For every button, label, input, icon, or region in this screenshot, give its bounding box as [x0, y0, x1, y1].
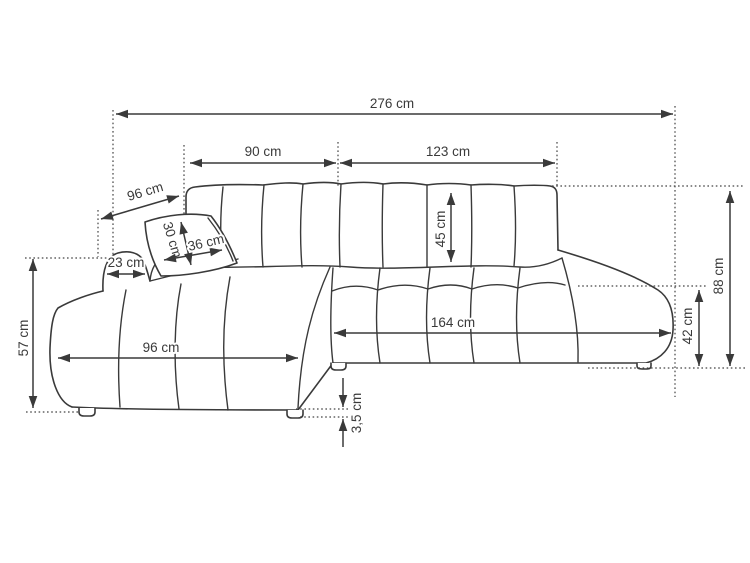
- sofa-dimension-diagram: 276 cm 90 cm 123 cm 96 cm 45 cm 30 cm 36…: [0, 0, 750, 563]
- seat-seam-3: [427, 268, 430, 363]
- seat-seam-2: [377, 268, 380, 363]
- diagram-canvas: 276 cm 90 cm 123 cm 96 cm 45 cm 30 cm 36…: [0, 0, 750, 563]
- dim-back-section-right-label: 123 cm: [426, 144, 470, 159]
- dim-total-height: 88 cm: [711, 191, 730, 366]
- dim-armrest-width-label: 23 cm: [108, 255, 145, 270]
- dim-seat-front-length: 164 cm: [334, 315, 671, 333]
- right-end-seam: [562, 258, 578, 362]
- dim-back-section-left: 90 cm: [190, 144, 336, 163]
- backrest-seam-8: [514, 186, 516, 266]
- dim-chaise-side-height-label: 57 cm: [16, 320, 31, 357]
- chaise-seam-3: [224, 277, 230, 410]
- dim-legs-height: 3,5 cm: [343, 378, 364, 447]
- seat-front-top-edge: [332, 283, 565, 291]
- backrest-seam-7: [471, 185, 472, 267]
- dim-backrest-height-label: 45 cm: [433, 211, 448, 248]
- chaise-bottom-edge: [72, 407, 298, 410]
- dim-seat-height: 42 cm: [680, 290, 699, 366]
- dim-chaise-front-length-label: 96 cm: [143, 340, 180, 355]
- chaise-seam-1: [119, 290, 126, 407]
- dim-armrest-width: 23 cm: [107, 255, 145, 274]
- dim-back-section-left-label: 90 cm: [245, 144, 282, 159]
- backrest-seam-2: [262, 185, 264, 267]
- backrest-bottom-edge: [186, 258, 562, 268]
- backrest-outline: [186, 183, 558, 251]
- backrest-seam-3: [301, 184, 303, 267]
- seat-seam-1: [331, 268, 333, 363]
- dim-backrest-height: 45 cm: [433, 193, 451, 262]
- dim-chaise-side-height: 57 cm: [16, 259, 33, 408]
- dim-total-width-label: 276 cm: [370, 96, 414, 111]
- dim-seat-front-length-label: 164 cm: [431, 315, 475, 330]
- chaise-outline: [50, 291, 103, 407]
- dim-total-width: 276 cm: [116, 96, 673, 114]
- dim-total-height-label: 88 cm: [711, 258, 726, 295]
- dim-back-section-right: 123 cm: [340, 144, 555, 163]
- seat-seam-5: [517, 268, 520, 363]
- dim-chaise-front-length: 96 cm: [58, 340, 298, 358]
- foot-seat-middle: [331, 363, 346, 370]
- chaise-seat-boundary: [298, 267, 330, 408]
- foot-chaise-left: [79, 408, 95, 416]
- dim-legs-height-label: 3,5 cm: [349, 393, 364, 434]
- backrest-seam-4: [339, 184, 341, 267]
- right-end-outline: [333, 250, 673, 363]
- sofa-drawing: [50, 183, 673, 419]
- dim-seat-height-label: 42 cm: [680, 308, 695, 345]
- dim-chaise-back-depth-label: 96 cm: [125, 179, 165, 204]
- backrest-seam-5: [382, 184, 383, 267]
- chaise-depth-edge: [298, 363, 333, 410]
